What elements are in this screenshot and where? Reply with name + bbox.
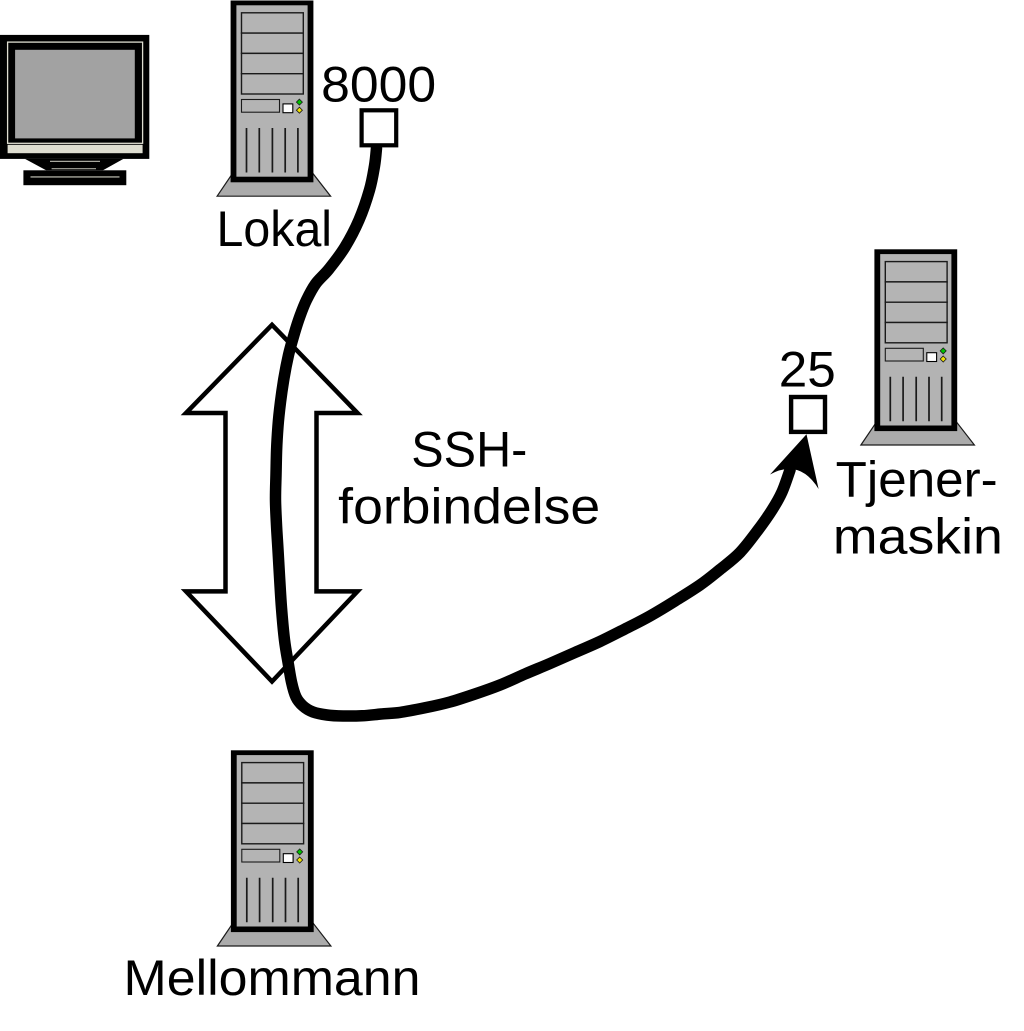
svg-text:maskin: maskin bbox=[833, 507, 1003, 564]
svg-text:Lokal: Lokal bbox=[217, 200, 333, 257]
svg-text:8000: 8000 bbox=[321, 56, 436, 113]
svg-text:25: 25 bbox=[779, 341, 836, 398]
svg-text:SSH-: SSH- bbox=[411, 421, 527, 478]
svg-text:Mellommann: Mellommann bbox=[124, 949, 421, 1006]
svg-text:Tjener-: Tjener- bbox=[836, 450, 998, 507]
svg-text:forbindelse: forbindelse bbox=[338, 477, 600, 534]
